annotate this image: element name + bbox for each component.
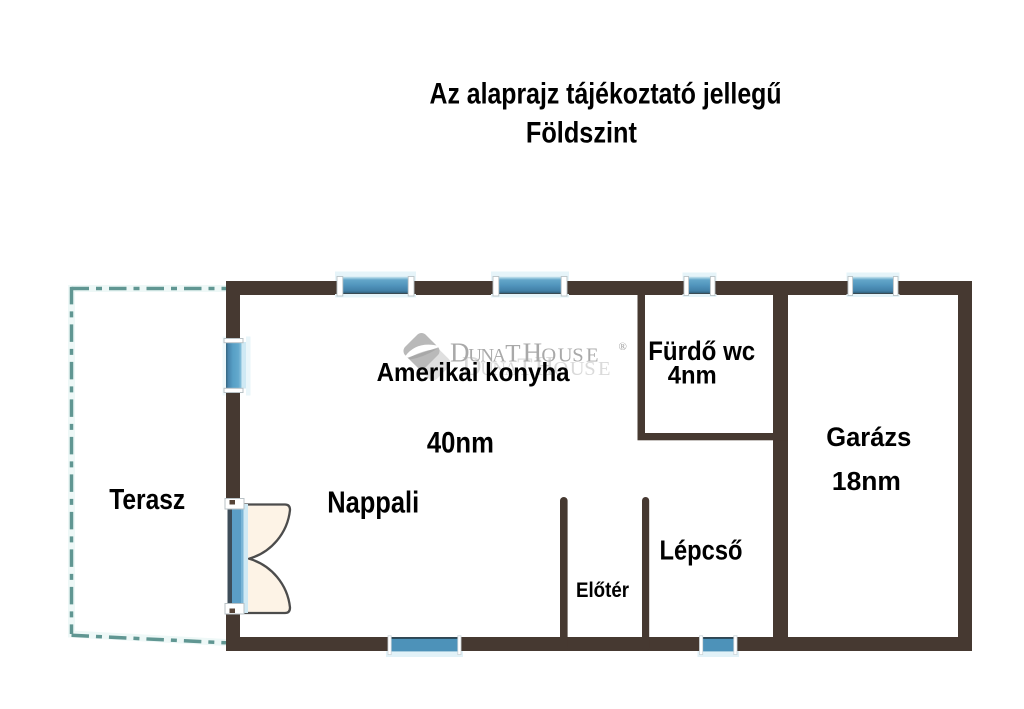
svg-text:4nm: 4nm	[668, 361, 717, 389]
svg-text:Lépcső: Lépcső	[660, 534, 743, 565]
svg-text:Amerikai konyha: Amerikai konyha	[377, 359, 571, 387]
svg-text:Az alaprajz tájékoztató jelleg: Az alaprajz tájékoztató jellegű	[430, 77, 782, 110]
svg-text:Terasz: Terasz	[109, 484, 185, 516]
svg-text:Nappali: Nappali	[327, 486, 419, 520]
svg-text:Garázs: Garázs	[826, 422, 911, 452]
svg-text:Földszint: Földszint	[526, 116, 637, 149]
svg-text:18nm: 18nm	[832, 466, 901, 496]
svg-text:Előtér: Előtér	[576, 577, 629, 602]
svg-text:®: ®	[619, 341, 627, 353]
svg-text:40nm: 40nm	[427, 427, 494, 460]
